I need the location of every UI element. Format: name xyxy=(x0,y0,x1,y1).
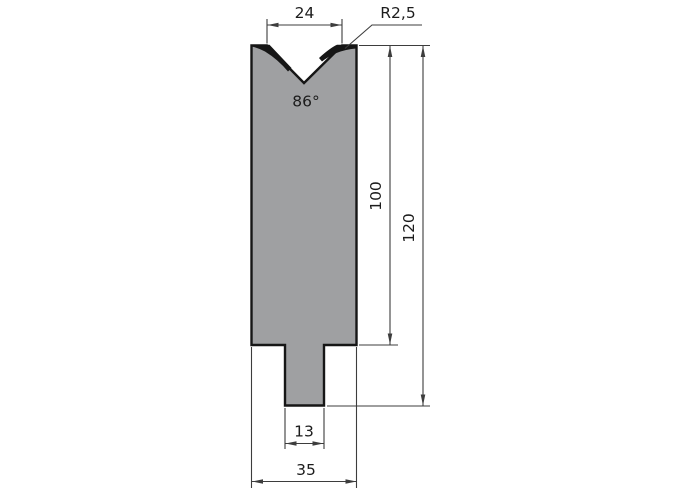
arrowhead-up xyxy=(421,46,426,57)
arrowhead-right xyxy=(331,23,342,28)
arrowhead-left xyxy=(286,441,297,446)
arrowhead-left xyxy=(268,23,279,28)
dim-body-height: 100 xyxy=(359,46,398,345)
dim-label-radius: R2,5 xyxy=(380,4,415,22)
die-cross-section-drawing: 24 R2,5 86° 100 xyxy=(0,0,680,490)
dim-tang-width: 13 xyxy=(285,408,324,449)
dim-label-tang-width: 13 xyxy=(294,423,314,441)
arrowhead-left xyxy=(252,479,263,484)
dim-label-body-width: 35 xyxy=(296,461,316,479)
technical-drawing-canvas: 24 R2,5 86° 100 xyxy=(0,0,680,490)
arrowhead-up xyxy=(388,46,393,57)
arrowhead-right xyxy=(313,441,324,446)
dim-label-body-height: 100 xyxy=(367,181,385,211)
dim-label-vee-opening: 24 xyxy=(295,4,315,22)
dim-vee-opening: 24 xyxy=(267,4,342,44)
dim-label-vee-angle: 86° xyxy=(292,93,319,111)
arrowhead-down xyxy=(388,334,393,345)
arrowhead-down xyxy=(421,395,426,406)
arrowhead-right xyxy=(346,479,357,484)
dim-label-total-height: 120 xyxy=(400,213,418,243)
radius-callout: R2,5 xyxy=(345,4,422,49)
